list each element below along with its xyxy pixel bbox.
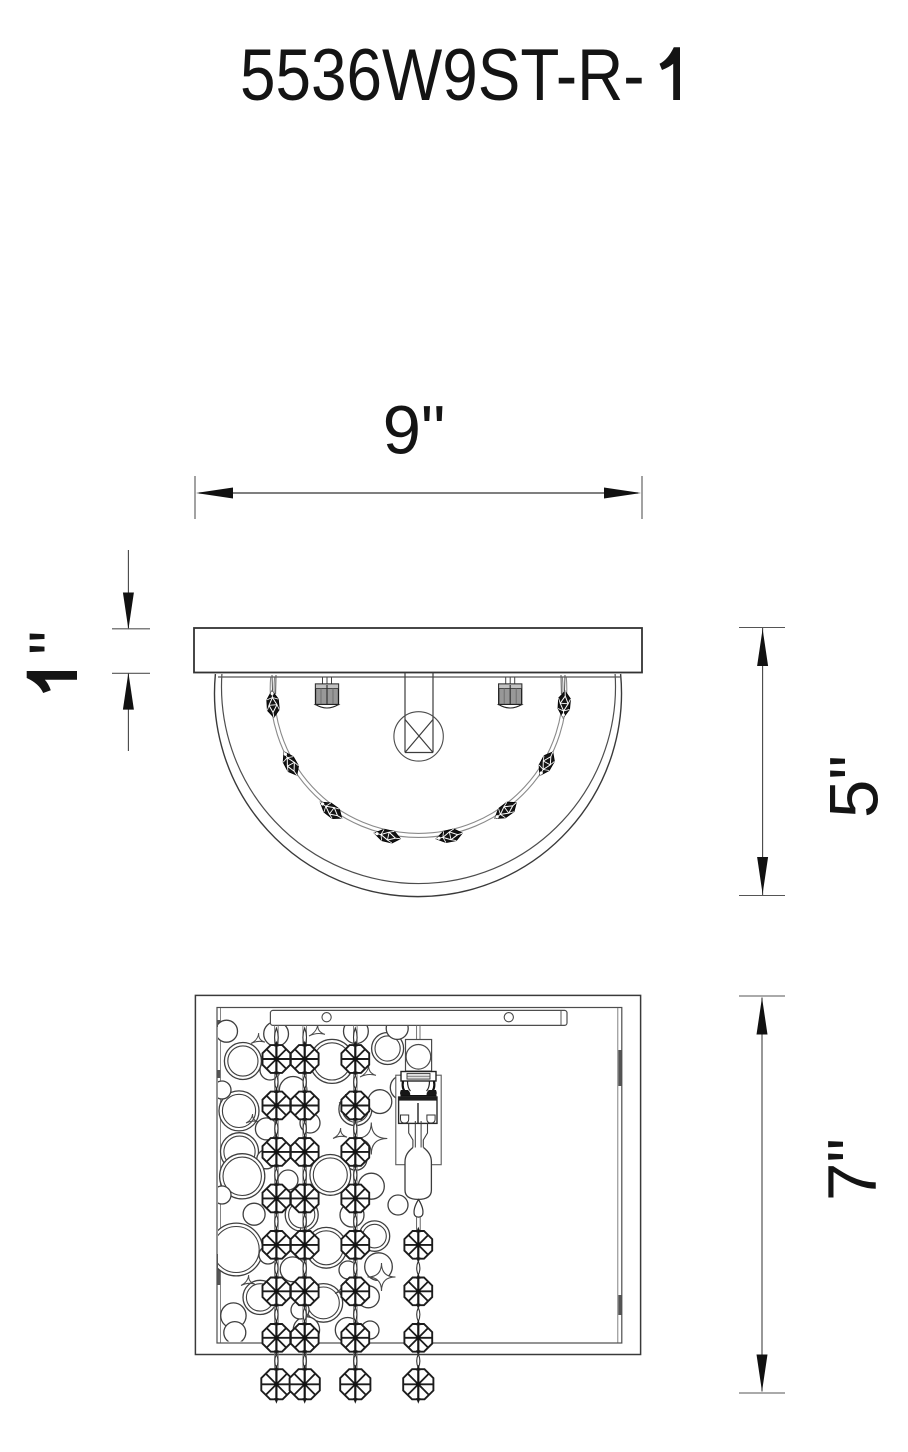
svg-text:7": 7" [814,1138,891,1201]
svg-text:": " [15,631,92,656]
svg-text:9": 9" [383,392,446,469]
svg-text:5536W9ST-R-: 5536W9ST-R- [240,35,645,116]
svg-text:5": 5" [816,755,893,818]
